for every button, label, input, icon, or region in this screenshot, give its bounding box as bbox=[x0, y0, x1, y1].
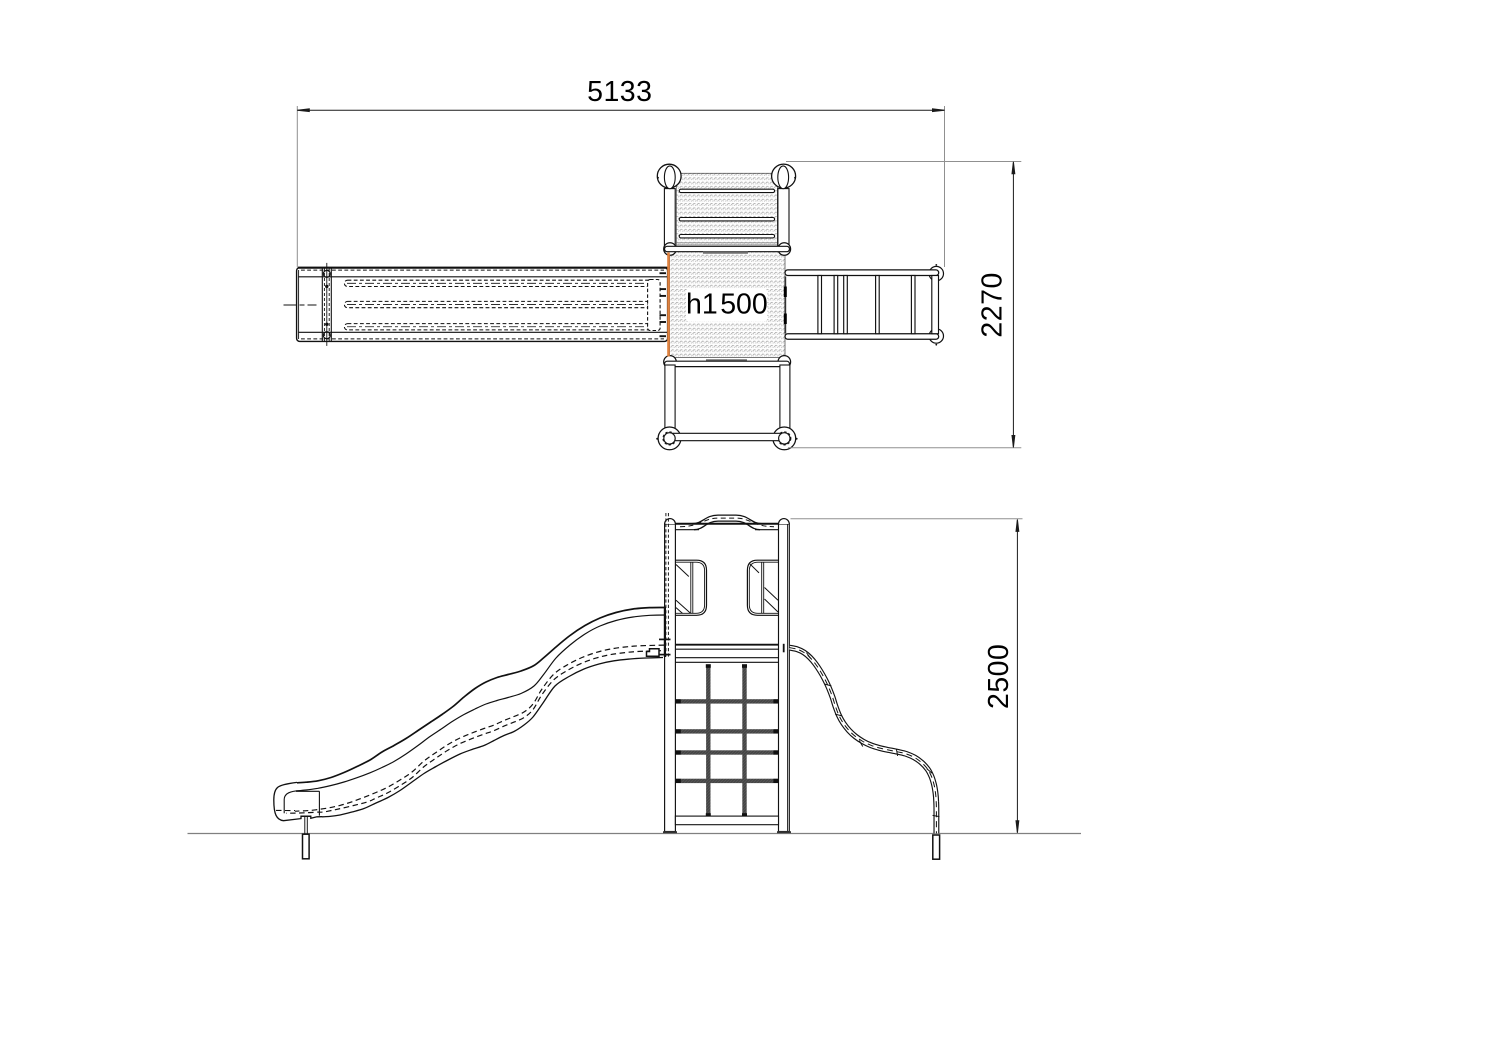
svg-text:5133: 5133 bbox=[587, 76, 652, 108]
svg-text:2270: 2270 bbox=[976, 272, 1008, 337]
svg-text:2500: 2500 bbox=[983, 644, 1015, 709]
svg-text:h1500: h1500 bbox=[686, 289, 768, 321]
